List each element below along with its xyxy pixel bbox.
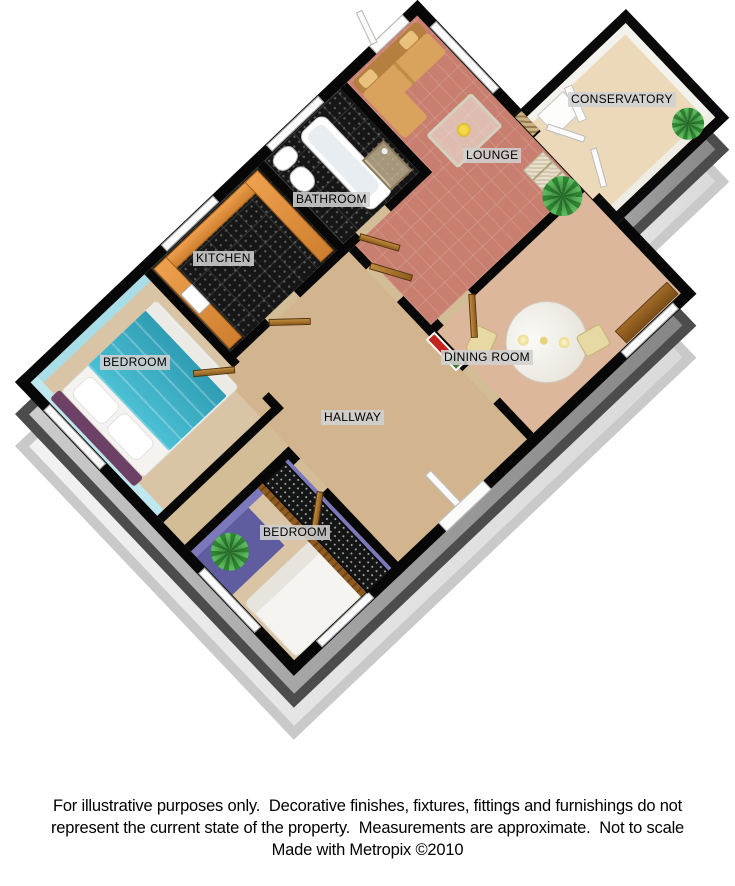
room-label-dining-room: DINING ROOM [441,350,533,365]
disclaimer-footer: For illustrative purposes only. Decorati… [0,795,735,861]
room-label-lounge: LOUNGE [463,148,521,163]
room-label-bathroom: BATHROOM [293,192,370,207]
room-label-hallway: HALLWAY [321,410,384,425]
floor-plan-canvas: CONSERVATORY LOUNGE BATHROOM KITCHEN BED… [0,0,735,886]
room-label-bedroom-2: BEDROOM [260,525,330,540]
lounge-exterior-door [356,10,378,46]
conservatory-glass-wall [620,23,715,123]
metropix-credit: Made with Metropix ©2010 [0,839,735,861]
room-label-conservatory: CONSERVATORY [568,92,676,107]
room-label-kitchen: KITCHEN [193,251,254,266]
door-kitchen [269,318,311,326]
disclaimer-line-1: For illustrative purposes only. Decorati… [0,795,735,817]
disclaimer-line-2: represent the current state of the prope… [0,817,735,839]
room-label-bedroom-1: BEDROOM [100,355,170,370]
